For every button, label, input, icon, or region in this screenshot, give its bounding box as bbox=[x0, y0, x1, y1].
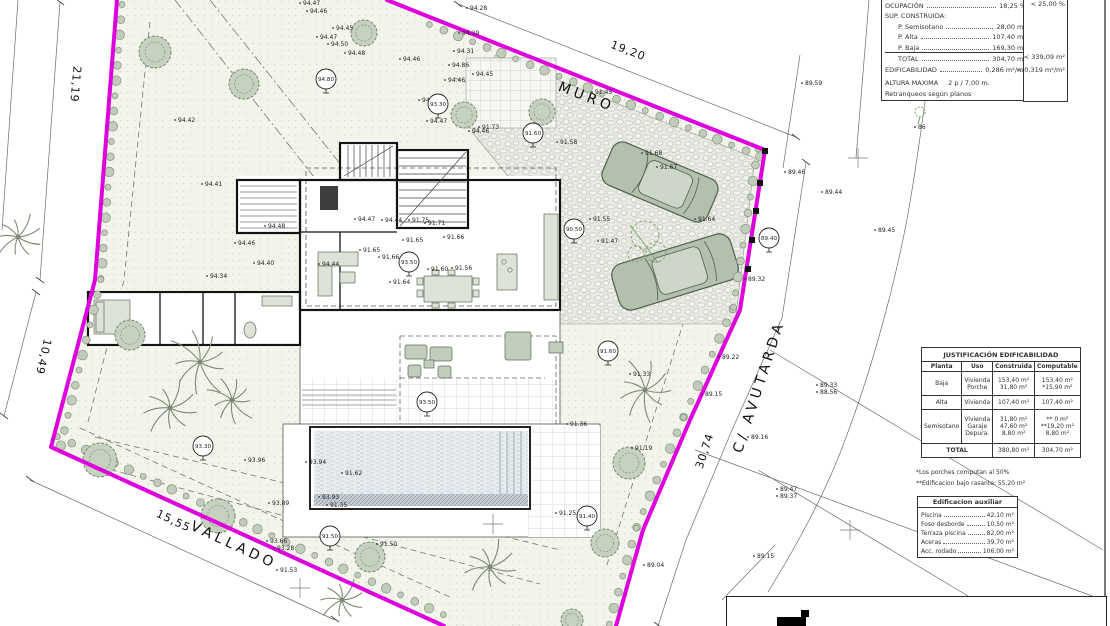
spot-elevation-value: 94.46 bbox=[448, 77, 465, 84]
spot-elevation-value: 94.46 bbox=[310, 8, 327, 15]
cell-construida: 153,40 m²31,80 m² bbox=[993, 372, 1035, 396]
hedge-shrub bbox=[104, 167, 114, 177]
benchmark-value: 91.60 bbox=[600, 349, 616, 355]
dimension-label: 30,74 bbox=[693, 432, 717, 471]
pool-area bbox=[283, 424, 600, 537]
spot-elevation-value: 91.75 bbox=[412, 217, 429, 224]
hedge-shrub bbox=[116, 47, 122, 53]
note-line: **Edificacion bajo rasante: 55,20 m² bbox=[916, 478, 1025, 489]
spot-elevation-value: 94.47 bbox=[303, 0, 320, 7]
hedge-shrub bbox=[68, 439, 76, 447]
benchmark-value: 91.50 bbox=[322, 534, 338, 540]
spot-elevation-value: 91.67 bbox=[660, 164, 677, 171]
cell-uso: ViviendaPorche bbox=[962, 372, 993, 396]
spot-elevation: 89.15 bbox=[753, 553, 774, 560]
reg-value: 169,30 m² bbox=[992, 44, 1026, 52]
hedge-shrub bbox=[99, 244, 107, 252]
aux-value: 39,70 m² bbox=[987, 539, 1014, 546]
spot-elevation: 94.34 bbox=[206, 273, 227, 280]
reg-label: EDIFICABILIDAD bbox=[885, 66, 937, 74]
hedge-shrub bbox=[712, 135, 722, 145]
spot-elevation: 89.32 bbox=[744, 276, 765, 283]
hedge-shrub bbox=[729, 142, 735, 148]
spot-elevation: 91.68 bbox=[641, 150, 662, 157]
survey-cross bbox=[840, 520, 860, 540]
spot-elevation: 93.89 bbox=[268, 500, 289, 507]
spot-elevation-value: 89.22 bbox=[722, 354, 739, 361]
spot-elevation-value: 93.96 bbox=[248, 457, 265, 464]
spot-elevation-value: 89.16 bbox=[751, 434, 768, 441]
hedge-shrub bbox=[411, 598, 419, 606]
benchmark-level: 89.40 bbox=[759, 228, 779, 252]
cell-planta: Semisotano bbox=[922, 410, 962, 444]
hedge-shrub bbox=[89, 305, 99, 315]
reg-value: 107,40 m² bbox=[992, 33, 1026, 41]
spot-elevation-value: 94.47 bbox=[320, 34, 337, 41]
spot-elevation-value: 94.46 bbox=[472, 128, 489, 135]
spot-elevation-value: 94.44 bbox=[385, 217, 402, 224]
spot-elevation-value: 86 bbox=[918, 124, 926, 131]
spot-elevation-value: 94.31 bbox=[457, 48, 474, 55]
hedge-shrub bbox=[124, 465, 134, 475]
spot-elevation: 89.22 bbox=[718, 354, 739, 361]
gate-post bbox=[762, 148, 768, 154]
spot-elevation: 93.94 bbox=[305, 459, 326, 466]
benchmark-value: 93.30 bbox=[430, 102, 446, 108]
hedge-shrub bbox=[733, 290, 739, 296]
logo bbox=[777, 617, 806, 626]
spot-elevation: 91.66 bbox=[443, 234, 464, 241]
title-block bbox=[726, 596, 1107, 626]
aux-value: 106,00 m² bbox=[983, 548, 1014, 555]
cell-total-label: TOTAL bbox=[922, 444, 993, 458]
reg-label: SUP. CONSTRUIDA: bbox=[885, 12, 946, 20]
spot-elevation: 91.56 bbox=[451, 265, 472, 272]
reg-label: OCUPACIÓN bbox=[885, 2, 924, 10]
benchmark-value: 91.60 bbox=[525, 131, 541, 137]
spot-elevation: 93.28 bbox=[273, 545, 294, 552]
reg-label: P. Semisotano bbox=[885, 23, 943, 31]
hedge-shrub bbox=[614, 588, 622, 596]
spot-elevation-value: 91.55 bbox=[593, 216, 610, 223]
spot-elevation: 89.04 bbox=[643, 562, 664, 569]
spot-elevation: 91.60 bbox=[427, 266, 448, 273]
hedge-shrub bbox=[312, 552, 318, 558]
spot-elevation-value: 94.48 bbox=[268, 223, 285, 230]
spot-elevation-value: 94.86 bbox=[452, 62, 469, 69]
table-title: Edificacion auxiliar bbox=[918, 497, 1017, 508]
spot-elevation-value: 89.44 bbox=[825, 189, 842, 196]
hedge-shrub bbox=[715, 334, 725, 344]
hedge-shrub bbox=[685, 125, 691, 131]
round-tree bbox=[115, 320, 145, 350]
spot-elevation: 94.31 bbox=[453, 48, 474, 55]
survey-cross bbox=[848, 148, 868, 168]
gate-post bbox=[757, 180, 763, 186]
round-tree bbox=[83, 443, 117, 477]
hedge-shrub bbox=[699, 130, 707, 138]
spot-elevation-value: 91.19 bbox=[635, 445, 652, 452]
spot-elevation-value: 93.89 bbox=[272, 500, 289, 507]
spot-elevation: 94.47 bbox=[426, 118, 447, 125]
hedge-shrub bbox=[368, 578, 376, 586]
spot-elevation-value: 91.35 bbox=[330, 502, 347, 509]
spot-elevation-value: 91.53 bbox=[280, 567, 297, 574]
hedge-shrub bbox=[61, 427, 69, 435]
spot-elevation-value: 94.46 bbox=[403, 56, 420, 63]
spot-elevation: 94.41 bbox=[201, 181, 222, 188]
spot-elevation-value: 89.47 bbox=[780, 486, 797, 493]
cell-uso: Vivienda bbox=[962, 396, 993, 410]
reg-label: P. Baja bbox=[885, 44, 919, 52]
hedge-shrub bbox=[665, 444, 675, 454]
spot-elevation-value: 94.40 bbox=[257, 260, 274, 267]
table-title: JUSTIFICACIÓN EDIFICABILIDAD bbox=[922, 348, 1081, 362]
hedge-shrub bbox=[106, 153, 114, 161]
benchmark-value: 91.40 bbox=[579, 514, 595, 520]
spot-elevation: 91.53 bbox=[276, 567, 297, 574]
spot-elevation: 91.47 bbox=[597, 238, 618, 245]
cell-planta: Baja bbox=[922, 372, 962, 396]
terrace bbox=[300, 310, 563, 432]
note-line: *Los porches computan al 50% bbox=[916, 467, 1025, 478]
reg-value: 18,25 % bbox=[999, 2, 1026, 10]
hedge-shrub bbox=[742, 147, 750, 155]
palm-tree bbox=[0, 214, 40, 255]
spot-elevation: 89.46 bbox=[784, 169, 805, 176]
hedge-shrub bbox=[741, 224, 751, 234]
hedge-shrub bbox=[426, 22, 432, 28]
spot-elevation: 91.64 bbox=[389, 279, 410, 286]
hedge-shrub bbox=[748, 176, 758, 186]
spot-elevation: 93.96 bbox=[244, 457, 265, 464]
spot-elevation: 86 bbox=[914, 124, 926, 131]
spot-elevation-value: 94.34 bbox=[210, 273, 227, 280]
hedge-shrub bbox=[497, 48, 507, 58]
table-notes: *Los porches computan al 50% **Edificaci… bbox=[916, 467, 1025, 489]
reg-value: 2 p / 7,00 m. bbox=[948, 79, 990, 87]
spot-elevation-value: 94.44 bbox=[322, 261, 339, 268]
hedge-shrub bbox=[82, 336, 90, 344]
spot-elevation: 89.47 bbox=[776, 486, 797, 493]
hedge-shrub bbox=[105, 184, 111, 190]
hedge-shrub bbox=[167, 485, 177, 495]
spot-elevation: 94.45 bbox=[332, 25, 353, 32]
logo bbox=[801, 610, 809, 617]
regulations-table: OCUPACIÓN18,25 % SUP. CONSTRUIDA: P. Sem… bbox=[881, 0, 1030, 101]
spot-elevation-value: 89.32 bbox=[748, 276, 765, 283]
dimension-label: 21,19 bbox=[67, 66, 83, 103]
hedge-shrub bbox=[626, 100, 636, 110]
hedge-shrub bbox=[737, 257, 745, 265]
aux-value: 10,50 m² bbox=[987, 521, 1014, 528]
spot-elevation: 91.62 bbox=[341, 470, 362, 477]
spot-elevation: 89.44 bbox=[821, 189, 842, 196]
spot-elevation-value: 89.33 bbox=[820, 382, 837, 389]
cell-computable: ** 0 m²**19,20 m²8,80 m² bbox=[1035, 410, 1081, 444]
spot-elevation-value: 89.15 bbox=[757, 553, 774, 560]
hedge-shrub bbox=[87, 322, 93, 328]
cell-computable: 107,40 m² bbox=[1035, 396, 1081, 410]
col-header: Construida bbox=[993, 362, 1035, 372]
spot-elevation: 94.42 bbox=[174, 117, 195, 124]
dimension-label: 10,49 bbox=[33, 338, 54, 376]
hedge-shrub bbox=[112, 93, 118, 99]
benchmark-value: 93.30 bbox=[195, 444, 211, 450]
hedge-shrub bbox=[752, 161, 760, 169]
cell-computable: 153,40 m²*15,90 m² bbox=[1035, 372, 1081, 396]
spot-elevation-value: 91.33 bbox=[633, 371, 650, 378]
hedge-shrub bbox=[253, 524, 263, 534]
hedge-shrub bbox=[239, 519, 247, 527]
spot-elevation: 94.28 bbox=[466, 5, 487, 12]
aux-value: 42,10 m² bbox=[987, 512, 1014, 519]
spot-elevation-value: 91.64 bbox=[393, 279, 410, 286]
hedge-shrub bbox=[733, 272, 743, 282]
hedge-shrub bbox=[609, 603, 619, 613]
spot-elevation-value: 94.28 bbox=[470, 5, 487, 12]
spot-elevation-value: 91.25 bbox=[559, 510, 576, 517]
hedge-shrub bbox=[440, 26, 448, 34]
hedge-shrub bbox=[101, 213, 111, 223]
spot-elevation: 94.47 bbox=[316, 34, 337, 41]
spot-elevation-value: 91.68 bbox=[645, 150, 662, 157]
reg-label: TOTAL bbox=[885, 55, 919, 63]
regulations-limits: < 25,00 % < 339,09 m² < 0,319 m²/m² bbox=[1023, 0, 1068, 102]
hedge-shrub bbox=[681, 414, 687, 420]
benchmark-value: 90.50 bbox=[566, 227, 582, 233]
spot-elevation-value: 91.65 bbox=[363, 247, 380, 254]
spot-elevation-value: 89.04 bbox=[647, 562, 664, 569]
hedge-shrub bbox=[701, 366, 709, 374]
hedge-shrub bbox=[709, 351, 715, 357]
hedge-shrub bbox=[76, 367, 82, 373]
spot-elevation: 89.45 bbox=[874, 227, 895, 234]
hedge-shrub bbox=[748, 194, 754, 200]
spot-elevation-value: 88.56 bbox=[820, 389, 837, 396]
hedge-shrub bbox=[731, 304, 737, 310]
hedge-shrub bbox=[110, 107, 118, 115]
aux-value: 82,00 m² bbox=[987, 530, 1014, 537]
gate-post bbox=[753, 208, 759, 214]
site-plan-sheet: 94.4794.4694.4594.4794.5094.4894.4694.31… bbox=[0, 0, 1110, 626]
edificability-table: JUSTIFICACIÓN EDIFICABILIDAD Planta Uso … bbox=[921, 347, 1062, 458]
hedge-shrub bbox=[97, 259, 107, 269]
aux-label: Acc. rodado bbox=[921, 548, 956, 555]
spot-elevation: 91.33 bbox=[629, 371, 650, 378]
spot-elevation: 94.46 bbox=[468, 128, 489, 135]
spot-elevation: 94.48 bbox=[344, 50, 365, 57]
hedge-shrub bbox=[71, 381, 79, 389]
spot-elevation: 94.40 bbox=[253, 260, 274, 267]
limit-value: < 339,09 m² bbox=[1024, 53, 1065, 61]
dimension-label: 19,20 bbox=[609, 38, 648, 63]
spot-elevation: 91.25 bbox=[555, 510, 576, 517]
spot-elevation: 94.46 bbox=[306, 8, 327, 15]
spot-elevation-value: 91.50 bbox=[380, 541, 397, 548]
hedge-shrub bbox=[424, 603, 434, 613]
hedge-shrub bbox=[470, 39, 476, 45]
spot-elevation: 91.50 bbox=[376, 541, 397, 548]
spot-elevation-value: 94.47 bbox=[358, 216, 375, 223]
spot-elevation: 94.47 bbox=[354, 216, 375, 223]
spot-elevation-value: 91.56 bbox=[455, 265, 472, 272]
spot-elevation: 91.75 bbox=[408, 217, 429, 224]
spot-elevation: 94.86 bbox=[448, 62, 469, 69]
spot-elevation-value: 93.94 bbox=[309, 459, 326, 466]
hedge-shrub bbox=[688, 398, 694, 404]
cell-construida: 31,80 m²47,60 m²8,80 m² bbox=[993, 410, 1035, 444]
spot-elevation-value: 93.28 bbox=[277, 545, 294, 552]
spot-elevation: 94.45 bbox=[472, 71, 493, 78]
spot-elevation: 94.50 bbox=[327, 41, 348, 48]
reg-value: 304,70 m² bbox=[992, 55, 1026, 63]
spot-elevation: 94.44 bbox=[318, 261, 339, 268]
hedge-shrub bbox=[339, 564, 349, 574]
hedge-shrub bbox=[693, 381, 703, 391]
auxiliary-table: Edificacion auxiliar Piscina42,10 m² Fos… bbox=[917, 496, 1018, 558]
hedge-shrub bbox=[744, 209, 752, 217]
benchmark-value: 89.40 bbox=[761, 236, 777, 242]
hedge-shrub bbox=[645, 491, 655, 501]
spot-elevation-value: 89.59 bbox=[805, 80, 822, 87]
spot-elevation: 93.66 bbox=[266, 538, 287, 545]
spot-elevation-value: 93.93 bbox=[322, 494, 339, 501]
spot-elevation: 91.66 bbox=[378, 254, 399, 261]
hedge-shrub bbox=[661, 461, 667, 467]
spot-elevation: 88.56 bbox=[816, 389, 837, 396]
spot-elevation: 94.46 bbox=[399, 56, 420, 63]
aux-label: Piscina bbox=[921, 512, 942, 519]
spot-elevation-value: 89.37 bbox=[780, 493, 797, 500]
cell-construida: 107,40 m² bbox=[993, 396, 1035, 410]
hedge-shrub bbox=[606, 621, 612, 626]
hedge-shrub bbox=[398, 592, 404, 598]
round-tree bbox=[591, 529, 619, 557]
hedge-shrub bbox=[183, 493, 189, 499]
elevator-shaft bbox=[320, 186, 338, 210]
cell-uso: ViviendaGarajeDepura. bbox=[962, 410, 993, 444]
cell-total-construida: 380,80 m² bbox=[993, 444, 1035, 458]
hedge-shrub bbox=[109, 139, 115, 145]
round-tree bbox=[561, 609, 583, 626]
round-tree bbox=[451, 102, 477, 128]
hedge-shrub bbox=[78, 350, 88, 360]
hedge-shrub bbox=[623, 555, 633, 565]
spot-elevation: 91.71 bbox=[424, 220, 445, 227]
gate-post bbox=[749, 237, 755, 243]
spot-elevation: 94.46 bbox=[234, 240, 255, 247]
spot-elevation: 89.33 bbox=[816, 382, 837, 389]
hedge-shrub bbox=[513, 56, 519, 62]
hedge-shrub bbox=[740, 242, 746, 248]
col-header: Planta bbox=[922, 362, 962, 372]
aux-label: Foso desborde bbox=[921, 521, 965, 528]
spot-elevation: 94.47 bbox=[299, 0, 320, 7]
col-header: Uso bbox=[962, 362, 993, 372]
hedge-shrub bbox=[642, 108, 648, 114]
hedge-shrub bbox=[483, 44, 491, 52]
spot-elevation-value: 89.45 bbox=[878, 227, 895, 234]
round-tree bbox=[529, 99, 555, 125]
hedge-shrub bbox=[140, 473, 146, 479]
spot-elevation: 91.65 bbox=[402, 237, 423, 244]
reg-value: 28,00 m² bbox=[996, 23, 1026, 31]
col-header: Computable bbox=[1035, 362, 1081, 372]
hedge-shrub bbox=[103, 199, 111, 207]
pool-water bbox=[314, 431, 528, 494]
spot-elevation-value: 94.41 bbox=[205, 181, 222, 188]
spot-elevation-value: 94.29 bbox=[462, 30, 479, 37]
spot-elevation: 91.36 bbox=[566, 421, 587, 428]
dimension-label: 15,55 bbox=[154, 507, 193, 534]
benchmark-value: 93.50 bbox=[419, 400, 435, 406]
spot-elevation-value: 91.64 bbox=[698, 216, 715, 223]
hedge-shrub bbox=[633, 525, 639, 531]
hedge-shrub bbox=[102, 230, 108, 236]
aux-label: Terraza piscina bbox=[921, 530, 966, 537]
spot-elevation-value: 89.15 bbox=[705, 391, 722, 398]
hedge-shrub bbox=[540, 66, 550, 76]
aux-label: Aceras bbox=[921, 539, 941, 546]
reg-label: Retranqueos según planos bbox=[885, 90, 971, 98]
spot-elevation: 91.65 bbox=[359, 247, 380, 254]
hedge-shrub bbox=[526, 61, 534, 69]
spot-elevation: 94.48 bbox=[264, 223, 285, 230]
limit-value: < 25,00 % bbox=[1031, 0, 1065, 8]
spot-elevation: 91.58 bbox=[556, 139, 577, 146]
spot-elevation: 91.67 bbox=[656, 164, 677, 171]
hedge-shrub bbox=[556, 73, 562, 79]
cell-planta: Alta bbox=[922, 396, 962, 410]
round-tree bbox=[139, 36, 171, 68]
gate-post bbox=[745, 266, 751, 272]
spot-elevation: 94.29 bbox=[458, 30, 479, 37]
hedge-shrub bbox=[154, 479, 162, 487]
spot-elevation: 91.55 bbox=[589, 216, 610, 223]
hedge-shrub bbox=[355, 572, 361, 578]
spot-elevation: 91.64 bbox=[694, 216, 715, 223]
hedge-shrub bbox=[65, 412, 71, 418]
benchmark-value: 93.50 bbox=[401, 260, 417, 266]
hedge-shrub bbox=[119, 2, 125, 8]
hedge-shrub bbox=[296, 544, 306, 554]
hedge-shrub bbox=[653, 476, 661, 484]
hedge-shrub bbox=[197, 499, 205, 507]
spot-elevation-value: 89.46 bbox=[788, 169, 805, 176]
spot-elevation: 89.37 bbox=[776, 493, 797, 500]
cell-total-computable: 304,70 m² bbox=[1035, 444, 1081, 458]
spot-elevation-value: 91.65 bbox=[406, 237, 423, 244]
limit-value: < 0,319 m²/m² bbox=[1017, 66, 1065, 74]
spot-elevation-value: 91.58 bbox=[560, 139, 577, 146]
survey-cross bbox=[290, 578, 310, 598]
hedge-shrub bbox=[440, 612, 446, 618]
spot-elevation-value: 91.60 bbox=[431, 266, 448, 273]
hedge-shrub bbox=[325, 558, 333, 566]
spot-elevation-value: 91.36 bbox=[570, 421, 587, 428]
spot-elevation: 91.35 bbox=[326, 502, 347, 509]
reg-label: P. Alta bbox=[885, 33, 918, 41]
hedge-shrub bbox=[640, 509, 646, 515]
reg-label: ALTURA MAXIMA bbox=[885, 79, 938, 87]
spot-elevation-value: 94.45 bbox=[476, 71, 493, 78]
spot-elevation: 89.15 bbox=[701, 391, 722, 398]
round-tree bbox=[351, 20, 377, 46]
hedge-shrub bbox=[656, 112, 664, 120]
spot-elevation-value: 93.66 bbox=[270, 538, 287, 545]
spot-elevation-value: 91.71 bbox=[428, 220, 445, 227]
